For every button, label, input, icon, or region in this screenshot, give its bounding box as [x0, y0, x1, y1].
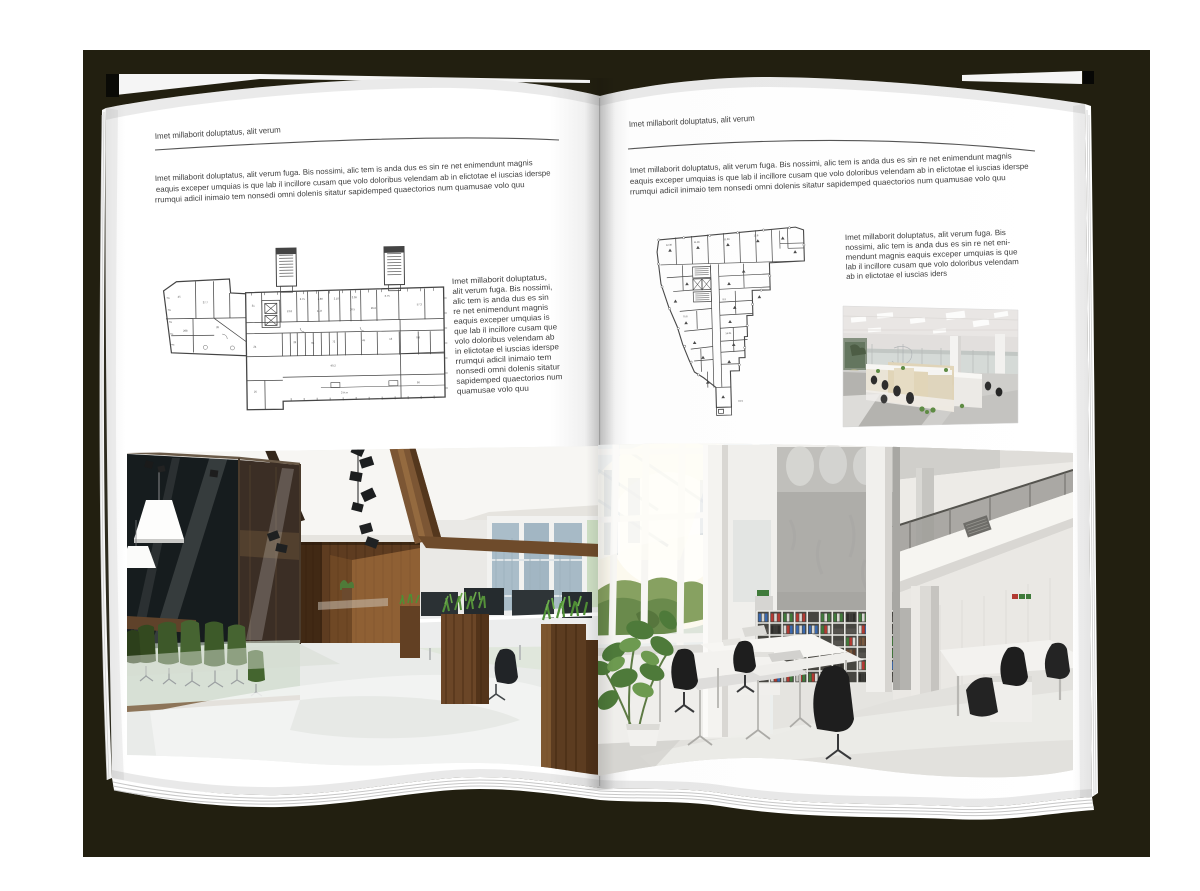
svg-text:11.8: 11.8 — [317, 309, 322, 313]
svg-text:2.80: 2.80 — [318, 297, 324, 301]
svg-text:2.75: 2.75 — [300, 297, 306, 301]
svg-text:13.8: 13.8 — [754, 234, 759, 237]
svg-text:57.3: 57.3 — [417, 302, 423, 306]
svg-text:2.10: 2.10 — [334, 296, 340, 300]
svg-text:0.8: 0.8 — [416, 335, 420, 339]
svg-text:13.8: 13.8 — [287, 309, 293, 313]
svg-text:37.7: 37.7 — [203, 300, 209, 304]
svg-text:268: 268 — [183, 329, 188, 333]
svg-text:16.5: 16.5 — [350, 307, 356, 311]
svg-text:11.09: 11.09 — [724, 238, 731, 241]
svg-text:3.75: 3.75 — [385, 294, 391, 298]
svg-text:14.01: 14.01 — [725, 332, 732, 335]
svg-text:12.30: 12.30 — [666, 244, 673, 247]
svg-text:11.46: 11.46 — [694, 241, 701, 244]
svg-text:2-й эт: 2-й эт — [341, 390, 349, 394]
svg-text:3.09: 3.09 — [352, 295, 358, 299]
svg-text:26.6: 26.6 — [371, 306, 377, 310]
svg-text:75.6: 75.6 — [683, 315, 688, 318]
svg-text:90.2: 90.2 — [331, 363, 337, 367]
svg-text:15.5: 15.5 — [738, 400, 743, 403]
